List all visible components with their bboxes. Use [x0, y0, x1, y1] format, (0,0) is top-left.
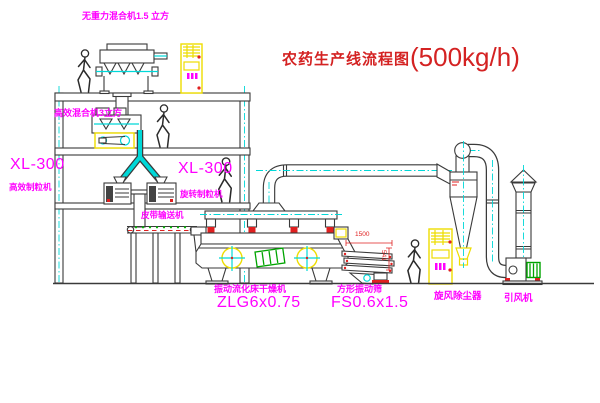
coil-symbol: [435, 263, 446, 270]
label-gravity-free-mixer: 无重力混合机1.5 立方: [82, 12, 169, 21]
cyclone-outlet-cap: [455, 143, 471, 159]
control-cabinet-ground: [429, 229, 452, 284]
spring-mounts: [207, 219, 335, 233]
title-text: 农药生产线流程图: [282, 48, 410, 73]
fluid-bed-dryer: [196, 165, 452, 285]
gravity-free-mixer: [96, 44, 167, 94]
label-screen-model: FS0.6x1.5: [331, 295, 408, 311]
person-figure: [408, 240, 420, 283]
process-flow-diagram: 农药生产线流程图 (500kg/h) 无重力混合机1.5 立方 高效混合机3立方…: [0, 0, 600, 403]
label-cyclone: 旋风除尘器: [434, 292, 482, 302]
dim-screen-width: 1500: [355, 232, 369, 239]
label-dryer-model: ZLG6x0.75: [217, 295, 301, 311]
label-fan: 引风机: [504, 294, 533, 304]
label-xl300-mid-model: XL-300: [178, 161, 233, 177]
label-dryer-name: 振动流化床干燥机: [214, 285, 286, 294]
granulator-right: [147, 177, 176, 204]
coil-symbol: [187, 73, 198, 79]
diagram-title: 农药生产线流程图 (500kg/h): [282, 42, 520, 73]
label-granulator-left: 高效制粒机: [9, 183, 52, 192]
granulator-left: [104, 177, 131, 204]
belt-conveyor: [127, 226, 206, 283]
cyclone-inlet: [437, 164, 450, 184]
label-granulator-mid: 旋转制粒机: [180, 190, 223, 199]
label-belt-conveyor: 皮带输送机: [141, 211, 184, 220]
induced-draft-fan: [503, 258, 542, 285]
label-xl300-left-model: XL-300: [10, 157, 65, 173]
label-high-efficiency-mixer: 高效混合机3立方: [54, 109, 122, 118]
control-cabinet-top: [181, 44, 202, 93]
person-figure: [157, 105, 169, 147]
title-capacity: (500kg/h): [410, 42, 520, 73]
person-figure: [78, 50, 90, 92]
dim-screen-height: 541: [380, 250, 387, 261]
center-chute: [131, 190, 148, 227]
label-screen-name: 方形振动筛: [337, 285, 382, 294]
